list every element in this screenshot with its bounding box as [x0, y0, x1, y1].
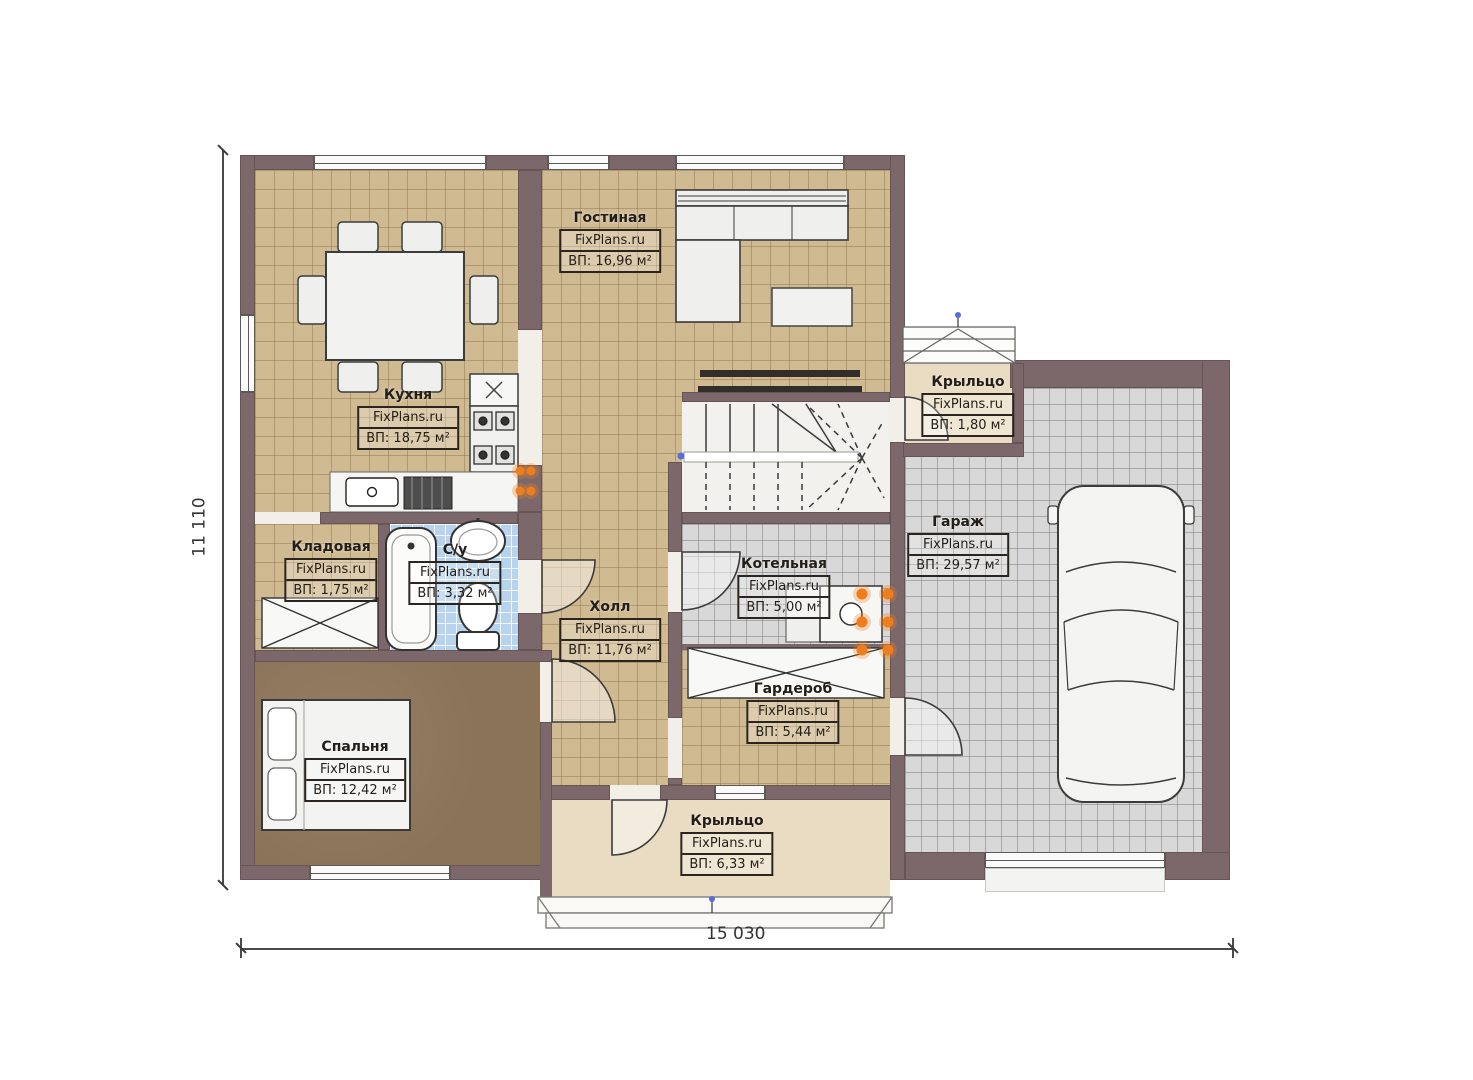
watermark-text: FixPlans.ru [561, 620, 659, 639]
room-area: ВП: 6,33 м² [682, 853, 771, 874]
room-area: ВП: 1,75 м² [286, 579, 375, 600]
kitchen-sink [346, 478, 398, 506]
car [1048, 486, 1194, 802]
chair [470, 276, 498, 324]
watermark-text: FixPlans.ru [359, 408, 457, 427]
chair [338, 222, 378, 252]
room-label-bathroom: С/у FixPlans.ru ВП: 3,32 м² [408, 542, 501, 605]
door-bedroom [552, 659, 615, 722]
room-label-porch-bottom: Крыльцо FixPlans.ru ВП: 6,33 м² [680, 813, 773, 876]
room-area: ВП: 3,32 м² [410, 582, 499, 603]
dishwasher [404, 477, 452, 509]
watermark-text: FixPlans.ru [923, 395, 1012, 414]
watermark-text: FixPlans.ru [682, 834, 771, 853]
room-area: ВП: 12,42 м² [306, 779, 404, 800]
pillow [268, 708, 296, 760]
reference-marker [709, 896, 715, 902]
room-label-storage: Кладовая FixPlans.ru ВП: 1,75 м² [284, 539, 377, 602]
watermark-text: FixPlans.ru [410, 563, 499, 582]
dimension-width-label: 15 030 [706, 924, 765, 944]
room-name: Котельная [737, 556, 830, 572]
dimension-line-horizontal [240, 948, 1233, 950]
room-label-kitchen: Кухня FixPlans.ru ВП: 18,75 м² [357, 387, 459, 450]
room-label-boiler: Котельная FixPlans.ru ВП: 5,00 м² [737, 556, 830, 619]
room-name: Крыльцо [680, 813, 773, 829]
room-label-porch-top: Крыльцо FixPlans.ru ВП: 1,80 м² [921, 374, 1014, 437]
chair [298, 276, 326, 324]
room-label-hall: Холл FixPlans.ru ВП: 11,76 м² [559, 599, 661, 662]
room-area: ВП: 1,80 м² [923, 414, 1012, 435]
dining-set [298, 222, 498, 392]
room-area: ВП: 18,75 м² [359, 427, 457, 448]
stair-handrail [698, 386, 862, 392]
coffee-table [772, 288, 852, 326]
room-name: Кухня [357, 387, 459, 403]
room-name: Спальня [304, 739, 406, 755]
room-name: Крыльцо [921, 374, 1014, 390]
plan-details [0, 0, 1473, 1080]
reference-marker [955, 312, 961, 318]
staircase [678, 386, 885, 510]
room-name: С/у [408, 542, 501, 558]
room-name: Гостиная [559, 210, 661, 226]
dimension-line-vertical [222, 150, 224, 885]
door-entry [612, 800, 667, 855]
reference-marker [678, 453, 685, 460]
room-label-wardrobe: Гардероб FixPlans.ru ВП: 5,44 м² [746, 681, 839, 744]
porch-top-steps [903, 312, 1015, 363]
car-mirror [1184, 506, 1194, 524]
dimension-height-label: 11 110 [190, 497, 210, 556]
watermark-text: FixPlans.ru [561, 231, 659, 250]
door-boiler [682, 552, 740, 610]
tv-console [700, 370, 860, 377]
watermark-text: FixPlans.ru [748, 702, 837, 721]
room-name: Гардероб [746, 681, 839, 697]
watermark-text: FixPlans.ru [306, 760, 404, 779]
car-mirror [1048, 506, 1058, 524]
door-garage [905, 698, 962, 755]
watermark-text: FixPlans.ru [739, 577, 828, 596]
room-label-garage: Гараж FixPlans.ru ВП: 29,57 м² [907, 514, 1009, 577]
room-label-bedroom: Спальня FixPlans.ru ВП: 12,42 м² [304, 739, 406, 802]
room-label-living: Гостиная FixPlans.ru ВП: 16,96 м² [559, 210, 661, 273]
watermark-text: FixPlans.ru [286, 560, 375, 579]
room-name: Холл [559, 599, 661, 615]
toilet-tank [457, 632, 499, 650]
car-body [1058, 486, 1184, 802]
sofa-chaise [676, 240, 740, 322]
room-area: ВП: 5,00 м² [739, 596, 828, 617]
chair [402, 222, 442, 252]
pillow [268, 768, 296, 820]
room-name: Гараж [907, 514, 1009, 530]
room-area: ВП: 11,76 м² [561, 639, 659, 660]
dining-table [326, 252, 464, 360]
room-area: ВП: 16,96 м² [561, 250, 659, 271]
room-name: Кладовая [284, 539, 377, 555]
room-area: ВП: 5,44 м² [748, 721, 837, 742]
watermark-text: FixPlans.ru [909, 535, 1007, 554]
floor-plan: Гостиная FixPlans.ru ВП: 16,96 м² Кухня … [0, 0, 1473, 1080]
room-area: ВП: 29,57 м² [909, 554, 1007, 575]
